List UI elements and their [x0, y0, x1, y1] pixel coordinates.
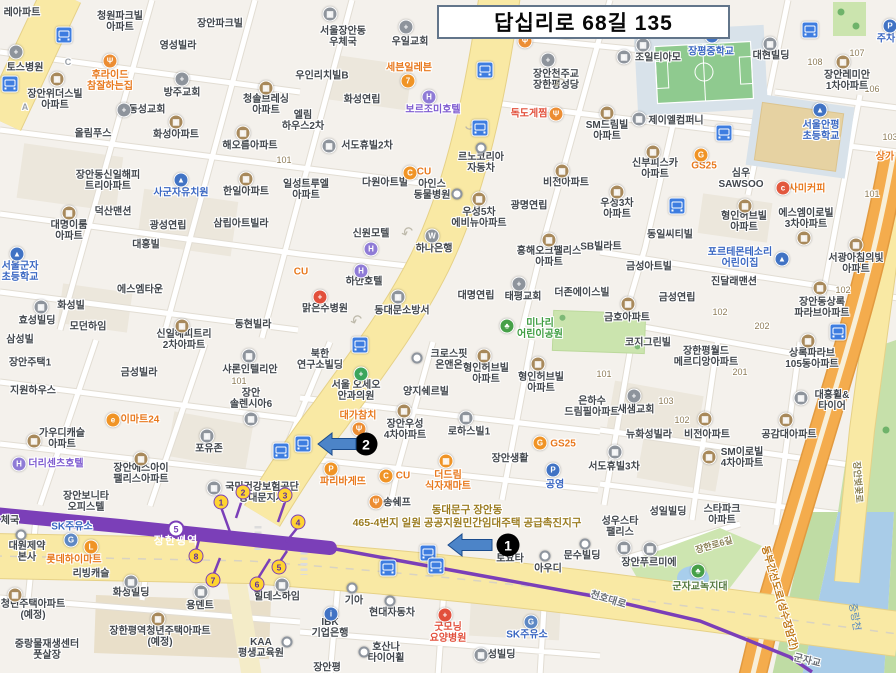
- map-label[interactable]: 롯데하이마트: [46, 554, 101, 565]
- bld-poi-icon[interactable]: ▦: [636, 38, 651, 53]
- map-label[interactable]: 호산나 타이어휠: [368, 642, 405, 664]
- apt-poi-icon[interactable]: ▦: [169, 115, 184, 130]
- map-label[interactable]: 포유존: [195, 443, 223, 454]
- map-label: 103: [658, 396, 673, 406]
- subway-exit-8[interactable]: 8: [189, 549, 204, 564]
- map-label[interactable]: 장한로6길: [694, 535, 733, 555]
- map-label[interactable]: 우성3차 아파트: [600, 198, 633, 220]
- map-label[interactable]: 굿모닝 요양병원: [430, 622, 467, 644]
- bld-poi-icon[interactable]: ▦: [632, 112, 647, 127]
- bld-poi-icon[interactable]: ▦: [459, 411, 474, 426]
- apt-poi-icon[interactable]: ▦: [738, 199, 753, 214]
- chu-poi-icon[interactable]: +: [399, 20, 414, 35]
- address-title-text: 답십리로 68길 135: [494, 7, 673, 37]
- str-poi-icon[interactable]: e: [106, 413, 121, 428]
- map-label[interactable]: 포르테몬테소리 어린이집: [708, 247, 772, 269]
- map-label[interactable]: 신부피스카 아파트: [632, 158, 678, 180]
- map-label[interactable]: 동일씨티빌: [647, 229, 693, 240]
- bld-poi-icon[interactable]: ▦: [608, 445, 623, 460]
- apt-poi-icon[interactable]: ▦: [151, 612, 166, 627]
- htl-poi-icon[interactable]: H: [12, 457, 27, 472]
- map-label[interactable]: 뉴화성빌라: [626, 429, 672, 440]
- bld-poi-icon[interactable]: ▦: [617, 50, 632, 65]
- chu-poi-icon[interactable]: +: [627, 389, 642, 404]
- apt-poi-icon[interactable]: ▦: [698, 412, 713, 427]
- map-label[interactable]: 중랑천: [846, 602, 862, 631]
- apt-poi-icon[interactable]: ▦: [836, 55, 851, 70]
- map-label[interactable]: 동대문소방서: [374, 305, 429, 316]
- map-label[interactable]: SM이로빌 4차아파트: [721, 447, 764, 469]
- res-poi-icon[interactable]: Ψ: [103, 54, 118, 69]
- apt-poi-icon[interactable]: ▦: [259, 81, 274, 96]
- str-poi-icon[interactable]: C: [379, 469, 394, 484]
- chu-poi-icon[interactable]: +: [9, 45, 24, 60]
- map-label[interactable]: 우인리치빌B: [295, 70, 348, 81]
- map-label[interactable]: 삼성빌: [6, 334, 34, 345]
- dot-poi-icon[interactable]: [412, 353, 423, 364]
- med-poi-icon[interactable]: +: [354, 367, 369, 382]
- str-poi-icon[interactable]: G: [533, 436, 548, 451]
- map-label[interactable]: 군자교: [792, 652, 821, 670]
- map-label[interactable]: 하나은행: [416, 243, 453, 254]
- kin-poi-icon[interactable]: ▲: [775, 252, 790, 267]
- bus-stop-icon[interactable]: [669, 198, 686, 215]
- map-label[interactable]: 상가: [876, 151, 894, 162]
- map-label[interactable]: 서울안평 초등학교: [803, 120, 840, 142]
- map-label[interactable]: 대원제약 본사: [9, 541, 46, 563]
- map-label[interactable]: KAA 평생교육원: [238, 637, 284, 659]
- map-label[interactable]: 대흥휠& 타이어: [815, 390, 850, 412]
- bld-poi-icon[interactable]: ▦: [617, 541, 632, 556]
- tre-poi-icon[interactable]: ♣: [691, 564, 706, 579]
- str-poi-icon[interactable]: ▦: [439, 454, 454, 469]
- map-label[interactable]: 리빙캐슬: [73, 568, 110, 579]
- map-label: 202: [754, 321, 769, 331]
- str-poi-icon[interactable]: 7: [401, 74, 416, 89]
- subway-exit-7[interactable]: 7: [206, 573, 221, 588]
- map-label-layer: 레아파트토스병원장안위더스빌 아파트CA청원파크빌 아파트영성빌라장안파크빌후라…: [0, 0, 896, 673]
- bld-poi-icon[interactable]: ▦: [124, 575, 139, 590]
- map-label: 201: [732, 367, 747, 377]
- map-label[interactable]: 아인스 동물병원: [414, 179, 451, 201]
- dot-poi-icon[interactable]: [476, 143, 487, 154]
- dot-poi-icon[interactable]: [385, 596, 396, 607]
- bank-poi-icon[interactable]: W: [425, 229, 440, 244]
- dot-poi-icon[interactable]: [452, 189, 463, 200]
- map-label[interactable]: 장안생활: [492, 453, 529, 464]
- subway-exit-5[interactable]: 5: [272, 560, 287, 575]
- map-label[interactable]: 양지쉐르빌: [403, 386, 449, 397]
- map-label[interactable]: 삼립아트빌라: [213, 218, 268, 229]
- subway-exit-3[interactable]: 3: [278, 488, 293, 503]
- map-label[interactable]: 서도휴빌2차: [341, 140, 393, 151]
- step-marker-2: 2: [355, 433, 378, 456]
- map-label[interactable]: 청원파크빌 아파트: [97, 11, 143, 33]
- map-label[interactable]: 성우스타 팰리스: [602, 516, 639, 538]
- tre-poi-icon[interactable]: ♣: [500, 319, 515, 334]
- map-label[interactable]: GS25: [691, 160, 717, 171]
- bld-poi-icon[interactable]: ▦: [323, 7, 338, 22]
- bus-stop-icon[interactable]: [380, 560, 397, 577]
- apt-poi-icon[interactable]: ▦: [797, 231, 812, 246]
- map-label[interactable]: 독도게찜: [511, 108, 548, 119]
- map-label[interactable]: 화성빌: [57, 300, 85, 311]
- map-label[interactable]: 대현빌딩: [753, 50, 790, 61]
- map-label[interactable]: 심우 SAWSOO: [718, 168, 763, 190]
- map-label[interactable]: SK주유소: [51, 521, 93, 532]
- map-label[interactable]: 세븐일레븐: [386, 62, 432, 73]
- sch-poi-icon[interactable]: ▲: [10, 247, 25, 262]
- map-label[interactable]: 금호아파트: [604, 312, 650, 323]
- map-label[interactable]: 상록파라브 105동아파트: [785, 348, 839, 370]
- map-label[interactable]: 일성트루엘 아파트: [283, 179, 329, 201]
- apt-poi-icon[interactable]: ▦: [600, 106, 615, 121]
- map-label[interactable]: 하안호텔: [346, 276, 383, 287]
- bus-stop-icon[interactable]: [273, 443, 290, 460]
- map-label[interactable]: CU: [396, 470, 410, 481]
- map-label: 102: [674, 415, 689, 425]
- htl-poi-icon[interactable]: H: [422, 90, 437, 105]
- caf-poi-icon[interactable]: c: [776, 181, 791, 196]
- apt-poi-icon[interactable]: ▦: [702, 450, 717, 465]
- chu-poi-icon[interactable]: +: [117, 103, 132, 118]
- gas-poi-icon[interactable]: G: [524, 615, 539, 630]
- map-label: 101: [276, 155, 291, 165]
- map-label[interactable]: 장한평역청년주택아파트 (예정): [109, 626, 210, 648]
- res-poi-icon[interactable]: Ψ: [369, 495, 384, 510]
- map-label[interactable]: 코지그린빌: [625, 337, 671, 348]
- map-label[interactable]: 진달래맨션: [711, 276, 757, 287]
- map-label[interactable]: 군자교녹지대: [672, 581, 727, 592]
- bus-stop-icon[interactable]: [428, 558, 445, 575]
- map-label[interactable]: 현대자동차: [369, 607, 415, 618]
- dot-poi-icon[interactable]: [580, 539, 591, 550]
- map-label[interactable]: CU: [294, 266, 308, 277]
- apt-poi-icon[interactable]: ▦: [646, 145, 661, 160]
- apt-poi-icon[interactable]: ▦: [50, 72, 65, 87]
- map-label[interactable]: 공감대아파트: [761, 429, 816, 440]
- map-label[interactable]: CU: [417, 166, 431, 177]
- map-label[interactable]: 토스병원: [7, 62, 44, 73]
- subway-exit-4[interactable]: 4: [291, 515, 306, 530]
- sch-poi-icon[interactable]: i: [324, 607, 339, 622]
- bld-poi-icon[interactable]: ▦: [207, 481, 222, 496]
- apt-poi-icon[interactable]: ▦: [849, 238, 864, 253]
- map-label: 103: [882, 132, 896, 142]
- bus-stop-icon[interactable]: [472, 120, 489, 137]
- apt-poi-icon[interactable]: ▦: [134, 452, 149, 467]
- map-label[interactable]: 올림푸스: [75, 128, 112, 139]
- map-label[interactable]: 금성아트빌: [626, 261, 672, 272]
- bus-stop-icon[interactable]: [2, 76, 19, 93]
- map-label[interactable]: 다원아트빌: [362, 177, 408, 188]
- map-label[interactable]: 해오름아파트: [222, 140, 277, 151]
- dot-poi-icon[interactable]: [359, 647, 370, 658]
- bld-poi-icon[interactable]: ▦: [244, 412, 259, 427]
- bld-poi-icon[interactable]: ▦: [200, 429, 215, 444]
- subway-exit-6[interactable]: 6: [250, 577, 265, 592]
- map-label[interactable]: 효성빌딩: [19, 315, 56, 326]
- bus-stop-icon[interactable]: [477, 62, 494, 79]
- htl-poi-icon[interactable]: H: [364, 242, 379, 257]
- map-label[interactable]: 서울장안동 우체국: [320, 26, 366, 48]
- map-label: C: [65, 57, 72, 67]
- par-poi-icon[interactable]: P: [546, 463, 561, 478]
- map-label[interactable]: 더드림 식자재마트: [425, 470, 471, 492]
- map-label[interactable]: GS25: [550, 438, 576, 449]
- str-poi-icon[interactable]: L: [84, 540, 99, 555]
- apt-poi-icon[interactable]: ▦: [236, 126, 251, 141]
- map-label: ↶: [399, 224, 417, 244]
- map-label[interactable]: 레아파트: [4, 7, 41, 18]
- map-label: ↶: [348, 312, 366, 332]
- map-label[interactable]: 광명연립: [511, 200, 548, 211]
- kin-poi-icon[interactable]: ▲: [174, 173, 189, 188]
- map-label: 102: [712, 307, 727, 317]
- map-label[interactable]: 이마트24: [121, 414, 160, 425]
- map-label[interactable]: 광성연립: [150, 220, 187, 231]
- map-label[interactable]: 형인허브빌 아파트: [463, 363, 509, 385]
- subway-exit-1[interactable]: 1: [214, 495, 229, 510]
- dot-poi-icon[interactable]: [282, 637, 293, 648]
- apt-poi-icon[interactable]: ▦: [801, 334, 816, 349]
- map-label[interactable]: 금성연립: [659, 292, 696, 303]
- map-label[interactable]: 장안우성 4차아파트: [384, 419, 426, 441]
- map-label[interactable]: 스타파크 아파트: [704, 504, 741, 526]
- map-label[interactable]: 대명연립: [458, 290, 495, 301]
- map-label[interactable]: 보르조미호텔: [405, 104, 460, 115]
- bus-stop-icon[interactable]: [352, 337, 369, 354]
- hos-poi-icon[interactable]: +: [313, 290, 328, 305]
- bld-poi-icon[interactable]: ▦: [34, 300, 49, 315]
- map-label[interactable]: 비전아파트: [543, 177, 589, 188]
- map-label[interactable]: 장안평: [313, 662, 341, 673]
- apt-poi-icon[interactable]: ▦: [472, 192, 487, 207]
- map-label[interactable]: SK주유소: [506, 629, 548, 640]
- map-label[interactable]: 서도휴빌3차: [588, 461, 640, 472]
- map-label[interactable]: 장안 솔렌시아6: [230, 388, 272, 410]
- map-label[interactable]: 에스엠이로빌 3차아파트: [778, 208, 833, 230]
- map-label[interactable]: 에스엠타운: [117, 284, 163, 295]
- bld-poi-icon[interactable]: ▦: [794, 391, 809, 406]
- map-label[interactable]: 문수빌딩: [564, 550, 601, 561]
- map-label: A: [22, 102, 29, 112]
- map-label[interactable]: 크로스핏 온앤온: [431, 349, 468, 371]
- map-label[interactable]: 장안보니타 오피스텔: [63, 491, 109, 513]
- map-label[interactable]: 맑은수병원: [302, 303, 348, 314]
- map-label[interactable]: 화성연립: [344, 94, 381, 105]
- map-label: 101: [864, 189, 879, 199]
- bus-stop-icon[interactable]: [830, 324, 847, 341]
- map-label[interactable]: 덕산맨션: [95, 206, 132, 217]
- map-label[interactable]: 로하스빌1: [448, 426, 490, 437]
- map-label[interactable]: 더존에이스빌: [554, 287, 609, 298]
- map-label[interactable]: 파리바게뜨: [320, 476, 366, 487]
- map-label[interactable]: 장안위더스빌 아파트: [27, 89, 82, 111]
- map-label[interactable]: 장평중학교: [688, 46, 734, 57]
- map-label[interactable]: 더리센츠호텔: [28, 458, 83, 469]
- bus-stop-icon[interactable]: [56, 27, 73, 44]
- bld-poi-icon[interactable]: ▦: [391, 290, 406, 305]
- map-label[interactable]: 은하수 드림필아파트: [564, 396, 619, 418]
- map-label[interactable]: 대명이룸 아파트: [51, 220, 88, 242]
- map-label[interactable]: 서울군자 초등학교: [2, 261, 39, 283]
- map-label[interactable]: 성일빌딩: [650, 506, 687, 517]
- map-label[interactable]: 미나리 어린이공원: [517, 318, 563, 340]
- map-label[interactable]: 공영: [546, 479, 564, 490]
- step-marker-1: 1: [497, 534, 520, 557]
- map-label[interactable]: 방주교회: [164, 87, 201, 98]
- bld-poi-icon[interactable]: ▦: [194, 585, 209, 600]
- map-label[interactable]: 사미커피: [789, 183, 826, 194]
- str-poi-icon[interactable]: G: [694, 148, 709, 163]
- map-label[interactable]: 장안동상록 파라브아파트: [794, 297, 849, 319]
- apt-poi-icon[interactable]: ▦: [175, 319, 190, 334]
- map-label[interactable]: 영성빌라: [160, 40, 197, 51]
- map-label: 108: [807, 57, 822, 67]
- map-label[interactable]: 대흥빌: [132, 239, 160, 250]
- map-label: 107: [849, 48, 864, 58]
- chu-poi-icon[interactable]: +: [175, 72, 190, 87]
- map-label[interactable]: 장안레미안 1차아파트: [824, 70, 870, 92]
- sch-poi-icon[interactable]: ▲: [813, 103, 828, 118]
- map-label[interactable]: 형인허브빌 아파트: [518, 372, 564, 394]
- map-label[interactable]: 우일교회: [392, 36, 429, 47]
- apt-poi-icon[interactable]: ▦: [779, 413, 794, 428]
- res-poi-icon[interactable]: Ψ: [549, 107, 564, 122]
- map-label[interactable]: 장안동신일해피 트리아파트: [76, 170, 140, 192]
- bld-poi-icon[interactable]: ▦: [322, 139, 337, 154]
- map-label[interactable]: 엘림 하우스2차: [282, 110, 324, 132]
- par-poi-icon[interactable]: P: [883, 19, 896, 34]
- gas-poi-icon[interactable]: G: [64, 533, 79, 548]
- map-label[interactable]: 장안주택1: [9, 357, 51, 368]
- dot-poi-icon[interactable]: [16, 530, 27, 541]
- apt-poi-icon[interactable]: ▦: [239, 172, 254, 187]
- hos-poi-icon[interactable]: +: [438, 608, 453, 623]
- map-label[interactable]: 후라이드 참잘하는집: [87, 70, 133, 92]
- map-label[interactable]: 제이엘컴퍼니: [648, 115, 703, 126]
- apt-poi-icon[interactable]: ▦: [477, 349, 492, 364]
- map-label[interactable]: 동성교회: [129, 104, 166, 115]
- map-label[interactable]: 샤론인텔리안: [222, 364, 277, 375]
- map-label[interactable]: 힐데스하임: [254, 591, 300, 602]
- map-label[interactable]: 조일티아모: [635, 52, 681, 63]
- bus-stop-icon[interactable]: [716, 125, 733, 142]
- map-label[interactable]: 한일아파트: [223, 186, 269, 197]
- map-label[interactable]: 동부간선도로(성수장암간): [759, 545, 799, 652]
- map-label[interactable]: 동현빌라: [235, 319, 272, 330]
- map-label[interactable]: 태평교회: [505, 291, 542, 302]
- map-label[interactable]: 금성빌라: [121, 367, 158, 378]
- map-label[interactable]: 송쉐프: [383, 497, 411, 508]
- bld-poi-icon[interactable]: ▦: [474, 648, 489, 663]
- apt-poi-icon[interactable]: ▦: [621, 297, 636, 312]
- apt-poi-icon[interactable]: ▦: [397, 404, 412, 419]
- map-label[interactable]: 북한 연구소빌딩: [297, 349, 343, 371]
- chu-poi-icon[interactable]: +: [541, 53, 556, 68]
- map-label[interactable]: 모던하임: [70, 321, 107, 332]
- apt-poi-icon[interactable]: ▦: [8, 588, 23, 603]
- apt-poi-icon[interactable]: ▦: [531, 357, 546, 372]
- map-label[interactable]: 기아: [345, 595, 363, 606]
- map-label[interactable]: 장한평월드 메르디앙아파트: [674, 346, 738, 368]
- map-label[interactable]: 서광아침의빛 아파트: [828, 253, 883, 275]
- map-label[interactable]: 형인허브빌 아파트: [721, 211, 767, 233]
- map-label[interactable]: 서울 오세오 안과의원: [332, 380, 381, 402]
- apt-poi-icon[interactable]: ▦: [62, 206, 77, 221]
- map-label[interactable]: 중랑물재생센터 풋살장: [15, 639, 79, 661]
- map-label[interactable]: 대가참치: [340, 410, 377, 421]
- map-label[interactable]: 체국: [1, 515, 19, 526]
- htl-poi-icon[interactable]: H: [354, 264, 369, 279]
- map-label[interactable]: 아우디: [534, 563, 562, 574]
- map-label[interactable]: 비전아파트: [684, 429, 730, 440]
- subway-exit-2[interactable]: 2: [236, 485, 251, 500]
- address-title: 답십리로 68길 135: [437, 5, 730, 39]
- map-label[interactable]: 장안벚꽃로: [852, 461, 865, 503]
- bld-poi-icon[interactable]: ▦: [763, 37, 778, 52]
- map-label[interactable]: 청년주택아파트 (예정): [1, 599, 65, 621]
- map-label: 101: [596, 369, 611, 379]
- dot-poi-icon[interactable]: [347, 583, 358, 594]
- bus-stop-icon[interactable]: [802, 22, 819, 39]
- map-label[interactable]: 지원하우스: [10, 385, 56, 396]
- map-label[interactable]: 새샘교회: [618, 404, 655, 415]
- str-poi-icon[interactable]: P: [324, 462, 339, 477]
- map-label[interactable]: 천호대로: [589, 589, 627, 610]
- map-label[interactable]: 용덴트: [186, 600, 214, 611]
- map-label[interactable]: 신원모텔: [353, 228, 390, 239]
- line-5-badge: 5: [168, 521, 185, 538]
- map-label[interactable]: 장안파크빌: [197, 18, 243, 29]
- map-label[interactable]: SB빌라트: [580, 241, 622, 252]
- apt-poi-icon[interactable]: ▦: [27, 434, 42, 449]
- chu-poi-icon[interactable]: +: [512, 277, 527, 292]
- map-label: 101: [231, 376, 246, 386]
- map-label: 102: [835, 285, 850, 295]
- map-label[interactable]: 르노코리아 자동차: [458, 152, 504, 174]
- map-label[interactable]: 주차: [877, 33, 895, 44]
- map-label[interactable]: SM드림빌 아파트: [586, 120, 629, 142]
- map-label[interactable]: 화성아파트: [153, 129, 199, 140]
- dot-poi-icon[interactable]: [540, 551, 551, 562]
- apt-poi-icon[interactable]: ▦: [813, 281, 828, 296]
- str-poi-icon[interactable]: C: [403, 166, 418, 181]
- map-label[interactable]: 우성5차 에비뉴아파트: [451, 207, 506, 229]
- apt-poi-icon[interactable]: ▦: [610, 185, 625, 200]
- map-label[interactable]: 장안푸르미에: [621, 557, 676, 568]
- bld-poi-icon[interactable]: ▦: [643, 542, 658, 557]
- bld-poi-icon[interactable]: ▦: [275, 578, 290, 593]
- map-label[interactable]: 흥해오크팰리스 아파트: [517, 246, 581, 268]
- apt-poi-icon[interactable]: ▦: [555, 164, 570, 179]
- map-label[interactable]: 사군자유치원: [153, 187, 208, 198]
- apt-poi-icon[interactable]: ▦: [542, 233, 557, 248]
- map-viewport: 레아파트토스병원장안위더스빌 아파트CA청원파크빌 아파트영성빌라장안파크빌후라…: [0, 0, 896, 673]
- bus-stop-icon[interactable]: [295, 436, 312, 453]
- map-label[interactable]: 가우디캐슬 아파트: [39, 428, 85, 450]
- bld-poi-icon[interactable]: ▦: [242, 349, 257, 364]
